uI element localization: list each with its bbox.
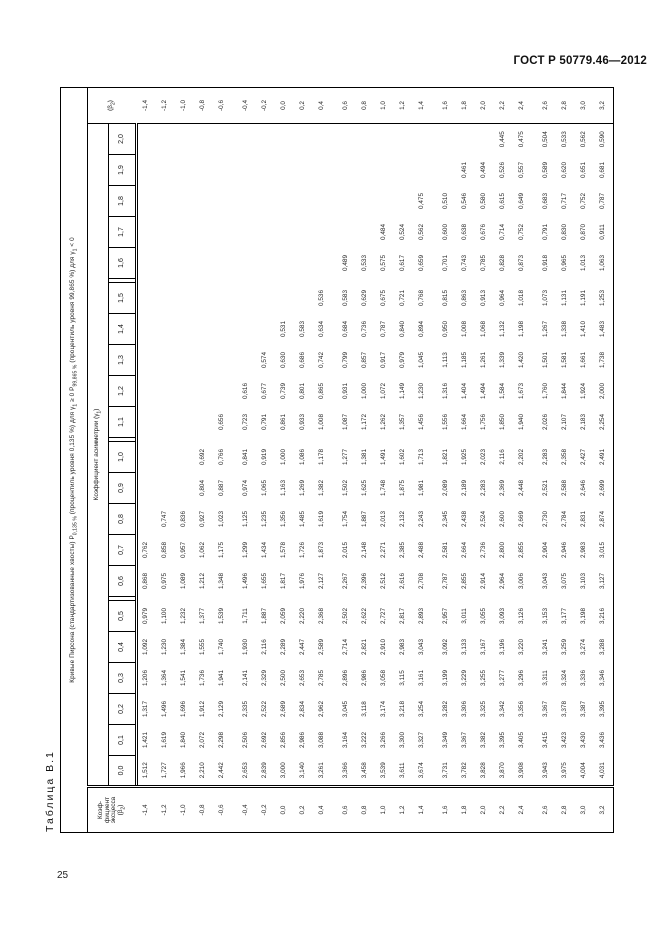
data-cell: 2,267 (337, 566, 356, 597)
beta-label-repeat: 3,2 (594, 87, 614, 123)
data-cell: 2,345 (437, 504, 456, 535)
data-cell: 2,616 (394, 566, 413, 597)
data-cell: 3,255 (475, 663, 494, 694)
beta-label-repeat: 2,0 (475, 87, 494, 123)
data-cell: 1,348 (213, 566, 232, 597)
data-cell: 3,387 (575, 694, 594, 725)
data-cell: 2,653 (294, 663, 313, 694)
data-cell: 1,277 (337, 442, 356, 473)
beta-label: 1,4 (413, 787, 432, 833)
data-cell (213, 283, 232, 314)
group-spacer (494, 597, 513, 601)
data-cell: 3,164 (337, 725, 356, 756)
data-cell: 2,714 (337, 632, 356, 663)
data-cell: 1,404 (456, 376, 475, 407)
beta-label-repeat: 0,8 (356, 87, 375, 123)
table-row: 3,04,0043,4303,3873,3363,2743,1983,1032,… (575, 87, 594, 832)
gamma-label: 0,9 (109, 473, 137, 504)
data-cell: 2,646 (575, 473, 594, 504)
data-cell: 1,539 (213, 601, 232, 632)
data-cell: 1,736 (194, 663, 213, 694)
data-cell (237, 186, 256, 217)
data-cell (256, 155, 275, 186)
data-cell: 0,659 (413, 248, 432, 279)
group-spacer (313, 279, 332, 283)
rotated-table-container: Таблица В.1 Кривые Пирсона (стандартизов… (44, 88, 608, 833)
group-spacer (213, 597, 232, 601)
data-cell: 1,817 (275, 566, 294, 597)
data-cell: 2,189 (456, 473, 475, 504)
data-cell: 0,957 (175, 535, 194, 566)
group-spacer (156, 597, 175, 601)
table-row: -0,62,4422,2982,1291,9411,7401,5391,3481… (213, 87, 232, 832)
data-cell (175, 314, 194, 345)
data-cell: 2,986 (294, 725, 313, 756)
data-cell (175, 283, 194, 314)
gamma-label: 0,8 (109, 504, 137, 535)
data-cell: 1,655 (256, 566, 275, 597)
gamma-label: 1,4 (109, 314, 137, 345)
data-cell: 1,925 (456, 442, 475, 473)
table-row: 2,23,8703,3953,3423,2773,1963,0932,9642,… (494, 87, 513, 832)
data-cell: 1,840 (175, 725, 194, 756)
data-cell: 0,723 (237, 407, 256, 438)
data-cell: 3,103 (575, 566, 594, 597)
data-cell: 3,198 (575, 601, 594, 632)
beta-label-repeat: 0,0 (275, 87, 294, 123)
data-cell: 1,494 (475, 376, 494, 407)
group-spacer (137, 597, 156, 601)
group-spacer (337, 438, 356, 442)
gamma-label: 1,5 (109, 283, 137, 314)
beta-label: 0,8 (356, 787, 375, 833)
data-cell (213, 376, 232, 407)
data-cell: 0,743 (456, 248, 475, 279)
data-cell (313, 248, 332, 279)
data-cell (137, 407, 156, 438)
data-cell: 0,917 (375, 345, 394, 376)
data-cell: 0,787 (594, 186, 614, 217)
data-cell: 3,254 (413, 694, 432, 725)
data-cell: 0,911 (594, 217, 614, 248)
data-cell: 2,089 (437, 473, 456, 504)
data-cell: 0,791 (537, 217, 556, 248)
table-row: 1,43,6743,3273,2543,1613,0432,8932,7082,… (413, 87, 432, 832)
data-cell (156, 345, 175, 376)
data-cell: 2,438 (456, 504, 475, 535)
data-cell: 1,496 (156, 694, 175, 725)
data-cell: 2,727 (375, 601, 394, 632)
data-cell (137, 473, 156, 504)
data-cell: 0,475 (413, 186, 432, 217)
data-cell: 1,421 (137, 725, 156, 756)
data-cell: 0,964 (494, 283, 513, 314)
data-cell (313, 124, 332, 155)
data-cell: 1,930 (237, 632, 256, 663)
data-cell: 2,015 (337, 535, 356, 566)
data-cell: 0,804 (194, 473, 213, 504)
group-spacer (194, 438, 213, 442)
table-row: 1,23,6113,3003,2183,1152,9832,8172,6162,… (394, 87, 413, 832)
beta-label: 2,8 (556, 787, 575, 833)
data-cell: 0,510 (437, 186, 456, 217)
beta-label: 1,2 (394, 787, 413, 833)
data-cell: 2,910 (375, 632, 394, 663)
beta-label-repeat: -0,6 (213, 87, 232, 123)
data-cell (194, 345, 213, 376)
data-cell: 3,423 (556, 725, 575, 756)
gamma-label: 2,0 (109, 124, 137, 155)
data-cell: 3,199 (437, 663, 456, 694)
beta-label-repeat: -0,8 (194, 87, 213, 123)
data-cell: 1,754 (337, 504, 356, 535)
data-cell: 2,329 (256, 663, 275, 694)
data-cell (394, 124, 413, 155)
data-cell (394, 155, 413, 186)
data-cell: 1,172 (356, 407, 375, 438)
data-cell: 4,004 (575, 756, 594, 787)
data-cell: 0,583 (294, 314, 313, 345)
group-spacer (513, 279, 532, 283)
group-spacer (294, 597, 313, 601)
data-cell: 0,927 (194, 504, 213, 535)
data-cell (356, 155, 375, 186)
gamma-label: 1,9 (109, 155, 137, 186)
data-cell: 3,975 (556, 756, 575, 787)
data-cell: 0,580 (475, 186, 494, 217)
data-cell: 3,908 (513, 756, 532, 787)
group-spacer (575, 279, 594, 283)
data-cell: 2,210 (194, 756, 213, 787)
data-cell: 1,364 (156, 663, 175, 694)
group-spacer (594, 438, 614, 442)
data-cell: 1,089 (175, 566, 194, 597)
gamma-label: 1,7 (109, 217, 137, 248)
data-cell (156, 314, 175, 345)
data-cell: 0,531 (275, 314, 294, 345)
beta-label-repeat: 0,4 (313, 87, 332, 123)
group-spacer (213, 438, 232, 442)
group-spacer (256, 597, 275, 601)
data-cell (175, 155, 194, 186)
group-spacer (537, 597, 556, 601)
table-row: 1,03,5393,2663,1743,0582,9102,7272,5122,… (375, 87, 394, 832)
data-cell: 2,736 (475, 535, 494, 566)
data-cell: 0,526 (494, 155, 513, 186)
data-cell: 0,861 (275, 407, 294, 438)
data-cell: 0,675 (375, 283, 394, 314)
data-cell: 1,000 (356, 376, 375, 407)
data-cell: 1,625 (356, 473, 375, 504)
data-cell: 0,533 (556, 124, 575, 155)
beta-label: 2,6 (537, 787, 556, 833)
data-cell: 0,840 (394, 314, 413, 345)
data-cell (175, 376, 194, 407)
data-cell: 2,821 (356, 632, 375, 663)
group-spacer (256, 438, 275, 442)
data-cell: 2,896 (337, 663, 356, 694)
data-cell: 2,500 (275, 663, 294, 694)
data-cell: 3,828 (475, 756, 494, 787)
data-cell: 0,870 (575, 217, 594, 248)
data-cell: 3,327 (413, 725, 432, 756)
data-cell: 0,913 (475, 283, 494, 314)
data-cell: 1,178 (313, 442, 332, 473)
gamma-label: 0,4 (109, 632, 137, 663)
data-cell (194, 155, 213, 186)
group-spacer (594, 597, 614, 601)
data-cell: 0,974 (237, 473, 256, 504)
beta-label-repeat: 1,2 (394, 87, 413, 123)
data-cell: 2,946 (556, 535, 575, 566)
group-spacer (109, 438, 137, 442)
data-cell: 0,461 (456, 155, 475, 186)
data-cell: 3,261 (313, 756, 332, 787)
beta-label: 2,2 (494, 787, 513, 833)
data-cell: 2,023 (475, 442, 494, 473)
data-cell: 3,045 (337, 694, 356, 725)
data-cell (194, 186, 213, 217)
data-cell: 1,073 (537, 283, 556, 314)
data-cell: 3,349 (437, 725, 456, 756)
data-cell: 1,844 (556, 376, 575, 407)
data-cell (475, 124, 494, 155)
data-cell: 1,420 (513, 345, 532, 376)
beta-label-repeat: 2,8 (556, 87, 575, 123)
data-cell: 1,556 (437, 407, 456, 438)
data-cell: 2,013 (375, 504, 394, 535)
table-row: 2,43,9083,4053,3563,2963,2203,1263,0062,… (513, 87, 532, 832)
group-spacer (337, 597, 356, 601)
group-spacer (475, 438, 494, 442)
data-cell: 0,445 (494, 124, 513, 155)
data-cell (375, 186, 394, 217)
group-spacer (537, 279, 556, 283)
group-spacer (194, 279, 213, 283)
asymmetry-header-row: Коэф-фициентэксцесса(β2) Коэффициент аси… (88, 87, 109, 832)
data-cell (194, 217, 213, 248)
data-cell: 1,727 (156, 756, 175, 787)
data-cell: 1,212 (194, 566, 213, 597)
data-cell: 0,918 (537, 248, 556, 279)
group-spacer (137, 438, 156, 442)
data-cell: 2,669 (513, 504, 532, 535)
data-cell: 3,043 (537, 566, 556, 597)
data-cell (313, 217, 332, 248)
data-cell: 2,283 (475, 473, 494, 504)
data-cell (156, 442, 175, 473)
data-cell (237, 124, 256, 155)
data-cell: 0,574 (256, 345, 275, 376)
group-spacer (237, 438, 256, 442)
table-row: -1,41,5121,4211,3171,2061,0920,9790,8680… (137, 87, 156, 832)
data-cell: 1,726 (294, 535, 313, 566)
data-cell: 3,870 (494, 756, 513, 787)
data-cell: 2,855 (456, 566, 475, 597)
data-cell: 1,013 (575, 248, 594, 279)
table-row: 0,03,0002,8562,6892,5002,2892,0591,8171,… (275, 87, 294, 832)
table-row: 2,63,9433,4153,3673,3113,2413,1533,0432,… (537, 87, 556, 832)
data-cell: 3,259 (556, 632, 575, 663)
data-cell: 0,830 (556, 217, 575, 248)
data-cell: 2,358 (556, 442, 575, 473)
data-cell: 1,269 (294, 473, 313, 504)
kurtosis-stub-header: Коэф-фициентэксцесса(β2) (88, 787, 137, 833)
data-cell: 0,868 (137, 566, 156, 597)
data-cell: 0,799 (337, 345, 356, 376)
data-cell: 3,118 (356, 694, 375, 725)
beta-label: -1,4 (137, 787, 156, 833)
data-cell: 3,342 (494, 694, 513, 725)
standard-reference: ГОСТ Р 50779.46—2012 (452, 55, 647, 67)
data-cell: 0,965 (556, 248, 575, 279)
data-cell: 3,058 (375, 663, 394, 694)
data-cell: 2,914 (475, 566, 494, 597)
data-cell: 1,875 (394, 473, 413, 504)
data-cell (137, 345, 156, 376)
data-cell: 2,689 (275, 694, 294, 725)
data-cell: 2,427 (575, 442, 594, 473)
data-cell: 2,512 (375, 566, 394, 597)
beta-label: 0,6 (337, 787, 356, 833)
data-cell: 3,378 (556, 694, 575, 725)
gamma-label: 0,6 (109, 566, 137, 597)
data-cell: 0,557 (513, 155, 532, 186)
asymmetry-header: Коэффициент асимметрии (γ1) (88, 124, 109, 787)
data-cell (313, 155, 332, 186)
group-spacer (537, 438, 556, 442)
page-number: 25 (57, 870, 68, 881)
data-cell: 1,541 (175, 663, 194, 694)
data-cell: 3,306 (456, 694, 475, 725)
data-cell: 1,008 (313, 407, 332, 438)
group-spacer (413, 597, 432, 601)
data-cell: 2,856 (275, 725, 294, 756)
beta-label: 1,0 (375, 787, 394, 833)
data-cell: 0,590 (594, 124, 614, 155)
data-cell: 1,149 (394, 376, 413, 407)
group-spacer (375, 438, 394, 442)
data-cell: 1,713 (413, 442, 432, 473)
gamma-label: 0,2 (109, 694, 137, 725)
data-cell: 0,873 (513, 248, 532, 279)
data-cell (256, 217, 275, 248)
data-cell (275, 155, 294, 186)
data-cell: 3,043 (413, 632, 432, 663)
data-cell: 2,785 (313, 663, 332, 694)
data-cell (275, 217, 294, 248)
data-cell (256, 314, 275, 345)
group-spacer (213, 279, 232, 283)
data-cell: 0,919 (256, 442, 275, 473)
data-cell (194, 124, 213, 155)
data-cell: 0,931 (337, 376, 356, 407)
group-spacer (275, 438, 294, 442)
data-cell: 3,366 (337, 756, 356, 787)
data-cell: 0,717 (556, 186, 575, 217)
data-cell: 3,436 (594, 725, 614, 756)
data-cell: 2,369 (494, 473, 513, 504)
beta-label-repeat: 2,2 (494, 87, 513, 123)
data-cell (175, 473, 194, 504)
group-spacer (513, 597, 532, 601)
data-cell: 3,126 (513, 601, 532, 632)
data-cell: 2,787 (437, 566, 456, 597)
data-cell: 2,962 (313, 694, 332, 725)
group-spacer (394, 279, 413, 283)
data-cell: 2,183 (575, 407, 594, 438)
data-cell: 0,686 (294, 345, 313, 376)
data-cell (337, 186, 356, 217)
data-cell: 1,491 (375, 442, 394, 473)
data-cell: 2,396 (356, 566, 375, 597)
data-cell: 1,887 (256, 601, 275, 632)
data-cell: 3,539 (375, 756, 394, 787)
group-spacer (356, 279, 375, 283)
data-cell: 2,368 (313, 601, 332, 632)
data-cell (194, 283, 213, 314)
data-cell (175, 217, 194, 248)
gamma-label: 1,3 (109, 345, 137, 376)
group-spacer (237, 279, 256, 283)
group-spacer (175, 438, 194, 442)
data-cell (137, 442, 156, 473)
data-cell (137, 283, 156, 314)
beta-repeat-header: (β2) (88, 87, 137, 123)
data-cell: 1,456 (413, 407, 432, 438)
beta-label: -0,2 (256, 787, 275, 833)
data-cell: 3,674 (413, 756, 432, 787)
data-cell: 0,801 (294, 376, 313, 407)
data-cell: 2,116 (494, 442, 513, 473)
beta-label-repeat: -0,2 (256, 87, 275, 123)
data-cell: 1,045 (413, 345, 432, 376)
group-spacer (156, 438, 175, 442)
data-cell: 3,093 (494, 601, 513, 632)
data-cell: 1,339 (494, 345, 513, 376)
data-cell: 1,092 (137, 632, 156, 663)
data-cell (156, 248, 175, 279)
data-cell: 0,742 (313, 345, 332, 376)
data-cell: 2,893 (413, 601, 432, 632)
data-cell: 0,649 (513, 186, 532, 217)
data-cell (156, 283, 175, 314)
data-cell (175, 407, 194, 438)
group-spacer (156, 279, 175, 283)
data-cell: 2,506 (237, 725, 256, 756)
data-cell (137, 217, 156, 248)
group-spacer (337, 279, 356, 283)
beta-label-repeat: -0,4 (237, 87, 256, 123)
data-cell (156, 186, 175, 217)
table-row: 0,83,4583,2223,1182,9862,8212,6222,3962,… (356, 87, 375, 832)
beta-label-repeat: 1,8 (456, 87, 475, 123)
data-cell: 1,267 (537, 314, 556, 345)
data-cell: 1,555 (194, 632, 213, 663)
gamma-label: 1,6 (109, 248, 137, 279)
data-cell: 3,282 (437, 694, 456, 725)
data-cell: 0,651 (575, 155, 594, 186)
group-spacer (356, 597, 375, 601)
data-cell: 3,218 (394, 694, 413, 725)
data-cell: 2,708 (413, 566, 432, 597)
data-cell: 3,115 (394, 663, 413, 694)
data-cell (213, 217, 232, 248)
data-cell: 3,092 (437, 632, 456, 663)
table-row: -0,22,8392,6922,5222,3292,1161,8871,6551… (256, 87, 275, 832)
data-cell: 3,177 (556, 601, 575, 632)
data-cell: 0,865 (313, 376, 332, 407)
